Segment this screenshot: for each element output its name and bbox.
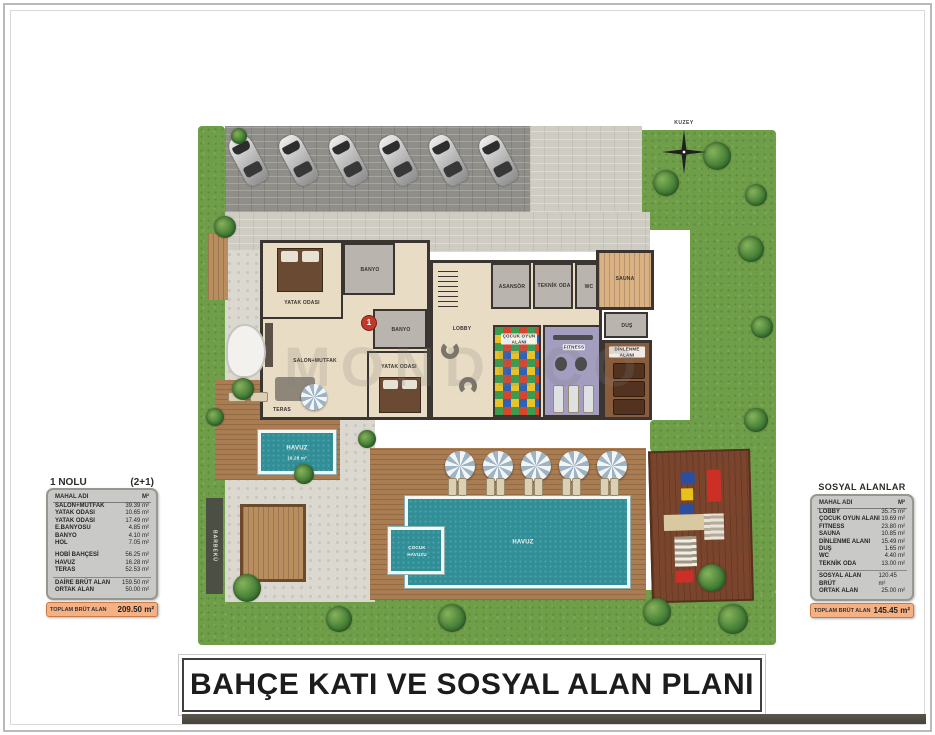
unit-legend-table: MAHAL ADI M² SALON+MUTFAK39.39 m² YATAK … (46, 488, 158, 600)
play-equipment-icon (681, 488, 693, 500)
compass-rose-icon (660, 128, 708, 176)
tree-icon (751, 316, 773, 338)
tree-icon (738, 236, 764, 262)
tree-icon (231, 128, 247, 144)
play-equipment-icon (675, 570, 693, 582)
legend-row: TEKNİK ODA13.00 m² (817, 561, 907, 568)
umbrella-icon (445, 451, 475, 481)
tree-icon (745, 184, 767, 206)
legend-row: HOBİ BAHÇESİ56.25 m² (53, 552, 151, 559)
play-equipment-icon (674, 536, 697, 567)
legend-summary-row: SOSYAL ALAN BRÜT120.45 m² (817, 573, 907, 588)
watermark: MONDECO (284, 334, 646, 399)
umbrella-icon (521, 451, 551, 481)
pool-area-label: 16.28 m² (287, 455, 307, 462)
legend-header-name: MAHAL ADI (819, 500, 852, 506)
sauna-room: SAUNA (596, 250, 654, 310)
technical-room: TEKNİK ODA (533, 263, 573, 309)
umbrella-icon (483, 451, 513, 481)
tree-icon (232, 378, 254, 400)
legend-row: LOBBY35.75 m² (817, 509, 907, 516)
play-equipment-icon (707, 469, 722, 501)
legend-row: TERAS52.53 m² (53, 567, 151, 574)
tree-icon (206, 408, 224, 426)
social-legend-name: SOSYAL ALANLAR (818, 482, 905, 492)
play-equipment-icon (704, 513, 725, 540)
garden-pond (226, 324, 266, 378)
room-label: BANYO (391, 327, 410, 333)
compass-label: KUZEY (656, 120, 712, 126)
elevator-room: ASANSÖR (491, 263, 531, 309)
unit-legend-title: 1 NOLU (2+1) (46, 477, 158, 488)
legend-header-area: M² (898, 500, 905, 506)
lounger-icon (600, 478, 609, 496)
play-equipment-icon (681, 472, 695, 484)
plan-title: BAHÇE KATI VE SOSYAL ALAN PLANI (190, 668, 754, 702)
legend-row: ÇOCUK OYUN ALANI19.69 m² (817, 516, 907, 523)
tree-icon (233, 574, 261, 602)
legend-row: SAUNA10.85 m² (817, 531, 907, 538)
room-label: TEKNİK ODA (537, 283, 571, 289)
tree-icon (643, 598, 671, 626)
tree-icon (326, 606, 352, 632)
legend-header-area: M² (142, 494, 149, 500)
bed-icon (277, 248, 323, 292)
lounger-icon (534, 478, 543, 496)
pool-label: ÇOCUK HAVUZU (400, 544, 434, 558)
social-legend-total: TOPLAM BRÜT ALAN 145.45 m² (810, 603, 914, 618)
legend-row: FITNESS23.80 m² (817, 524, 907, 531)
lounger-icon (610, 478, 619, 496)
legend-row: HOL7.05 m² (53, 540, 151, 547)
lounger-icon (486, 478, 495, 496)
tree-icon (698, 564, 726, 592)
room-label: ASANSÖR (499, 284, 525, 290)
pergola (240, 504, 306, 582)
room-label: LOBBY (453, 326, 472, 332)
legend-row: BANYO4.10 m² (53, 533, 151, 540)
legend-row: WC4.40 m² (817, 553, 907, 560)
pool-label: HAVUZ (512, 540, 533, 547)
lounger-icon (496, 478, 505, 496)
social-legend-table: MAHAL ADI M² LOBBY35.75 m² ÇOCUK OYUN AL… (810, 494, 914, 601)
site-plan: YATAK ODASI BANYO BANYO YATAK ODASI SALO… (198, 112, 778, 645)
entrance-deck (208, 234, 228, 300)
unit-legend: 1 NOLU (2+1) MAHAL ADI M² SALON+MUTFAK39… (46, 477, 158, 617)
lounger-icon (572, 478, 581, 496)
bbq-strip: BARBEKÜ (206, 498, 223, 594)
legend-row: E.BANYOSU4.85 m² (53, 525, 151, 532)
legend-header: MAHAL ADI M² (53, 493, 151, 503)
stairs (438, 267, 458, 307)
tree-icon (744, 408, 768, 432)
legend-header-name: MAHAL ADI (55, 494, 88, 500)
lounger-icon (458, 478, 467, 496)
unit-legend-type: (2+1) (130, 477, 154, 488)
lounger-icon (448, 478, 457, 496)
social-legend-title: SOSYAL ALANLAR (810, 482, 914, 492)
unit-legend-name: 1 NOLU (50, 477, 87, 488)
terrace-label: TERAS (273, 407, 291, 413)
room-label: BANYO (360, 267, 379, 273)
bbq-label: BARBEKÜ (212, 530, 218, 562)
social-legend: SOSYAL ALANLAR MAHAL ADI M² LOBBY35.75 m… (810, 482, 914, 618)
room-label: SAUNA (616, 276, 635, 282)
unit-number-badge: 1 (361, 315, 377, 331)
unit-legend-total: TOPLAM BRÜT ALAN 209.50 m² (46, 602, 158, 617)
tree-icon (438, 604, 466, 632)
umbrella-icon (597, 451, 627, 481)
compass: KUZEY (656, 120, 712, 186)
pool-label: HAVUZ (286, 446, 307, 453)
tree-icon (214, 216, 236, 238)
legend-row: HAVUZ16.28 m² (53, 560, 151, 567)
legend-summary-row: ORTAK ALAN50.00 m² (53, 587, 151, 594)
room-label: DUŞ (621, 323, 632, 329)
lounger-icon (613, 399, 645, 415)
kids-pool: ÇOCUK HAVUZU (388, 527, 444, 574)
room-label: WC (585, 284, 594, 290)
tree-icon (294, 464, 314, 484)
legend-row: DİNLENME ALANI15.49 m² (817, 539, 907, 546)
plan-title-box: BAHÇE KATI VE SOSYAL ALAN PLANI (182, 658, 762, 712)
kitchen-counter (265, 323, 273, 367)
legend-row: SALON+MUTFAK39.39 m² (53, 503, 151, 510)
umbrella-icon (559, 451, 589, 481)
legend-row: YATAK ODASI17.49 m² (53, 518, 151, 525)
path-right-of-parking (530, 126, 642, 212)
lounger-icon (524, 478, 533, 496)
legend-summary-row: DAİRE BRÜT ALAN159.50 m² (53, 580, 151, 587)
legend-header: MAHAL ADI M² (817, 499, 907, 509)
bathroom-1: BANYO (343, 243, 395, 295)
tree-icon (358, 430, 376, 448)
play-equipment-icon (679, 504, 693, 514)
bottom-bar (182, 714, 926, 724)
tree-icon (718, 604, 748, 634)
bedroom-1: YATAK ODASI (263, 243, 343, 319)
legend-row: DUŞ1.65 m² (817, 546, 907, 553)
legend-summary-row: ORTAK ALAN25.00 m² (817, 588, 907, 595)
lounger-icon (562, 478, 571, 496)
legend-row: YATAK ODASI10.65 m² (53, 510, 151, 517)
room-label: YATAK ODASI (284, 300, 319, 306)
